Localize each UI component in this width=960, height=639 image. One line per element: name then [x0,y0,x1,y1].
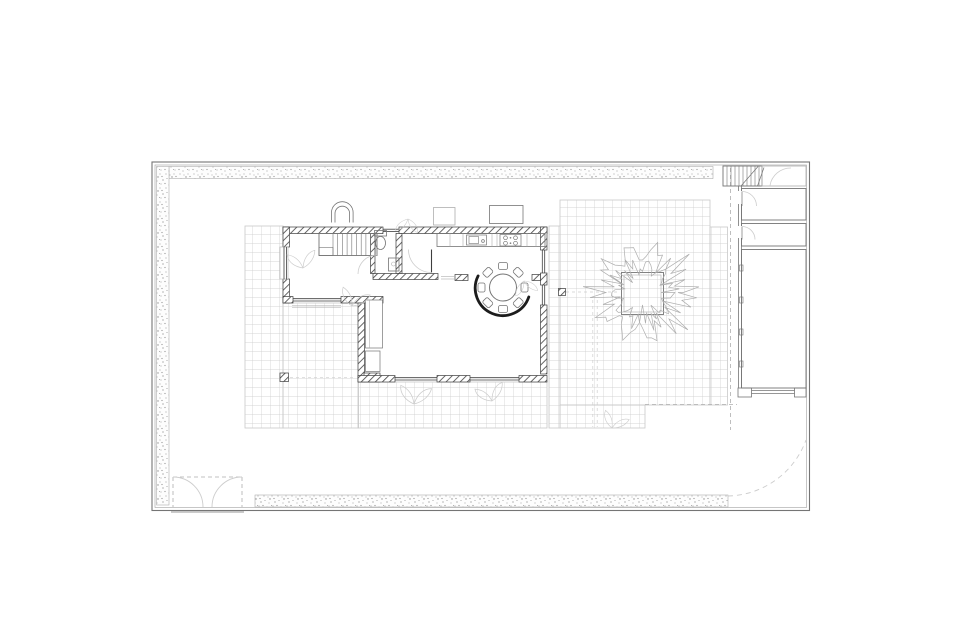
dining-chairs [478,263,528,313]
hedge-border-top [169,167,713,179]
door-gap-a [738,191,743,204]
garage [742,250,807,389]
service-room-lower [742,224,807,247]
terrace-east-south [560,405,645,428]
dining-set [475,263,529,316]
terrace-southwest [283,303,359,428]
south-wall-c [519,376,547,383]
gate-leaf-swing-west [173,477,203,507]
column-southwest [280,373,289,382]
dining-stub-west [455,275,468,281]
garage-pier-west [738,388,752,397]
vestibule-door-swing [770,168,791,186]
room-a-door-swing [742,192,757,207]
north-wall-west [283,227,383,234]
curved-partition-wall [475,276,529,316]
west-window-recess [280,247,288,279]
interior-stair [319,234,377,275]
stair-break-line [741,167,758,187]
exterior-bench [434,208,456,226]
terrace-east-notch [710,227,728,405]
stair-landing [319,248,333,256]
driveway-gate-swing [728,440,806,496]
hall-south-wall [373,274,438,280]
terrace-south [358,382,547,428]
service-room-upper [742,189,807,221]
garden-double-gate [173,477,242,507]
floor-plan-drawing [0,0,960,639]
service-stair [723,166,762,186]
terrace-east-sliver [549,226,560,428]
service-wing [723,166,806,397]
west-wall-upper [283,227,290,247]
cooktop [500,235,521,247]
wardrobe-closets [366,300,383,372]
dressing-door-swing [409,250,432,273]
south-wall-b [437,376,470,383]
east-wall-pier [541,273,548,285]
floor-plan-sheet [0,0,960,639]
north-wall-east [399,227,547,234]
wc-room [375,231,432,273]
round-dining-table [490,274,517,301]
column-east [559,289,566,296]
exterior-planter-box [490,206,524,224]
hedge-border-left [157,167,170,506]
kitchen-sink [467,235,487,245]
entry-arch [332,202,354,223]
south-wall-a [358,376,395,383]
hedge-border-bottom [255,495,728,507]
kitchen-counter [437,234,545,247]
garage-pier-east [795,388,807,397]
dining-stub-east [532,275,541,281]
gate-leaf-swing-east [212,477,242,507]
east-wall-lower [541,305,548,374]
southwest-wall-a [283,297,293,304]
vestibule-door-leaf [758,168,765,187]
exterior-elements [332,202,524,225]
wc-west-wall [371,234,376,274]
room-b-door-swing [742,227,755,240]
terrace-west-strip [245,226,283,428]
door-gap-b [738,226,743,238]
living-west-wall [358,303,365,382]
terrace-east-main [560,200,710,405]
